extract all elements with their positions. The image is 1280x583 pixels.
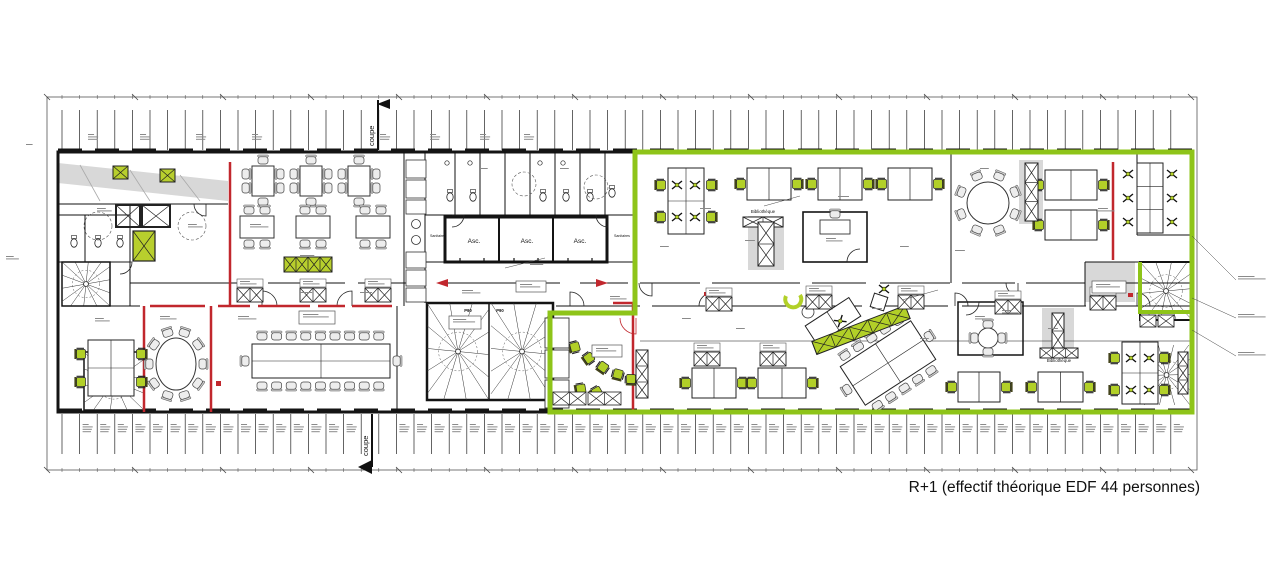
chair-icon — [257, 382, 268, 391]
office-chair-icon — [1025, 381, 1036, 392]
door-tag-1: P90 — [464, 308, 472, 313]
tiny-annotation-text — [596, 350, 616, 351]
wc-icon — [117, 239, 123, 247]
plan-rect — [216, 381, 221, 386]
plan-rect — [864, 180, 873, 189]
tiny-annotation-text — [1238, 314, 1255, 315]
office-chair-icon — [1108, 352, 1119, 363]
tiny-annotation-text — [259, 424, 265, 425]
oval-table — [156, 338, 196, 390]
tiny-annotation-text — [505, 431, 513, 432]
chair-icon — [338, 169, 347, 180]
tiny-annotation-text — [809, 288, 819, 289]
tiny-annotation-text — [480, 139, 489, 140]
tiny-annotation-text — [135, 426, 145, 427]
tiny-annotation-text — [540, 431, 548, 432]
plan-circle — [1129, 388, 1133, 392]
tiny-annotation-text — [487, 424, 493, 425]
chair-icon — [983, 348, 994, 357]
tiny-annotation-text — [347, 429, 356, 430]
plan-rect — [330, 333, 340, 340]
chair-icon — [969, 333, 978, 344]
tiny-annotation-text — [470, 429, 479, 430]
plan-rect — [1099, 221, 1108, 230]
plan-rect — [612, 368, 623, 379]
plan-rect — [199, 359, 206, 369]
tiny-annotation-text — [763, 345, 773, 346]
tiny-annotation-text — [1068, 431, 1076, 432]
tiny-annotation-text — [171, 426, 181, 427]
tiny-annotation-text — [1174, 426, 1184, 427]
tiny-annotation-text — [360, 292, 372, 293]
tiny-annotation-text — [417, 431, 425, 432]
plan-circle — [1126, 220, 1130, 224]
plan-rect — [682, 379, 691, 388]
tiny-annotation-text — [826, 238, 836, 239]
chair-icon — [338, 183, 347, 194]
plan-rect — [707, 213, 716, 222]
tiny-annotation-text — [88, 139, 97, 140]
office-chair-icon — [808, 377, 819, 388]
plan-rect — [315, 382, 325, 389]
cafeteria-table — [356, 216, 390, 238]
tiny-annotation-text — [487, 426, 497, 427]
tiny-annotation-text — [520, 284, 532, 285]
tiny-annotation-text — [435, 426, 445, 427]
plan-rect — [77, 350, 86, 359]
tiny-annotation-text — [736, 328, 745, 329]
plan-rect — [286, 382, 296, 389]
tiny-annotation-text — [998, 429, 1007, 430]
chair-icon — [300, 240, 311, 249]
tiny-annotation-text — [1015, 424, 1021, 425]
tiny-annotation-text — [1051, 429, 1060, 430]
office-chair-icon — [74, 376, 85, 387]
chair-icon — [244, 240, 255, 249]
tiny-annotation-text — [100, 426, 110, 427]
tiny-annotation-text — [470, 431, 478, 432]
tiny-annotation-text — [628, 424, 634, 425]
tiny-annotation-text — [980, 431, 988, 432]
tiny-annotation-text — [303, 281, 313, 282]
round-table — [978, 328, 998, 348]
plan-rect — [300, 207, 310, 214]
tiny-annotation-text — [1068, 429, 1077, 430]
tiny-annotation-text — [575, 426, 585, 427]
office-chair-icon — [1099, 179, 1110, 190]
tiny-annotation-text — [95, 320, 110, 321]
tiny-annotation-text — [399, 424, 405, 425]
tiny-annotation-text — [100, 431, 108, 432]
tiny-annotation-text — [1098, 208, 1108, 209]
tiny-annotation-text — [252, 134, 258, 135]
label-box — [760, 343, 786, 351]
plan-rect — [290, 183, 297, 193]
plan-rect — [300, 240, 310, 247]
tiny-annotation-text — [769, 431, 777, 432]
tiny-annotation-text — [826, 240, 843, 241]
tiny-annotation-text — [663, 426, 673, 427]
tiny-annotation-text — [628, 431, 636, 432]
tiny-annotation-text — [153, 426, 163, 427]
plan-rect — [373, 169, 380, 179]
plan-rect — [793, 180, 802, 189]
section-arrow-bottom — [358, 460, 372, 474]
tiny-annotation-text — [892, 424, 898, 425]
chair-icon — [360, 240, 371, 249]
plan-rect — [137, 350, 146, 359]
tiny-annotation-text — [910, 424, 916, 425]
tiny-annotation-text — [238, 316, 249, 317]
tiny-annotation-text — [523, 431, 531, 432]
plan-rect — [242, 183, 249, 193]
plan-rect — [338, 169, 345, 179]
library-label-2: Bibliothèque — [1047, 358, 1072, 363]
tiny-annotation-text — [1068, 424, 1074, 425]
tiny-annotation-text — [329, 431, 337, 432]
door-tag-2: P90 — [496, 308, 504, 313]
chair-icon — [359, 331, 370, 340]
office-chair-icon — [707, 211, 718, 222]
tiny-annotation-text — [1156, 424, 1162, 425]
tiny-annotation-text — [751, 431, 759, 432]
tiny-annotation-text — [505, 424, 511, 425]
tiny-annotation-text — [734, 424, 740, 425]
tiny-annotation-text — [1121, 429, 1130, 430]
tiny-annotation-text — [399, 429, 408, 430]
tiny-annotation-text — [857, 424, 863, 425]
tiny-annotation-text — [1103, 429, 1112, 430]
tiny-annotation-text — [118, 429, 127, 430]
wc-icon — [71, 239, 77, 247]
tiny-annotation-text — [347, 424, 353, 425]
tiny-annotation-text — [430, 139, 439, 140]
tiny-annotation-text — [769, 426, 779, 427]
tiny-annotation-text — [523, 424, 529, 425]
tiny-annotation-text — [430, 134, 436, 135]
tiny-annotation-text — [505, 426, 515, 427]
plan-rect — [118, 236, 123, 239]
chair-icon — [360, 205, 371, 214]
stair-newel — [1164, 289, 1169, 294]
tiny-annotation-text — [97, 208, 106, 209]
chair-icon — [300, 331, 311, 340]
tiny-annotation-text — [250, 224, 261, 225]
tiny-annotation-text — [140, 134, 146, 135]
tiny-annotation-text — [329, 429, 338, 430]
tiny-annotation-text — [118, 426, 128, 427]
chair-icon — [393, 356, 402, 367]
tiny-annotation-text — [487, 431, 495, 432]
chair-icon — [260, 240, 271, 249]
tiny-annotation-text — [975, 318, 992, 319]
tiny-annotation-text — [963, 426, 973, 427]
tiny-annotation-text — [347, 426, 357, 427]
chair-icon — [199, 359, 208, 370]
chair-icon — [316, 205, 327, 214]
chair-icon — [344, 331, 355, 340]
tiny-annotation-text — [188, 429, 197, 430]
tiny-annotation-text — [540, 429, 549, 430]
plan-rect — [657, 213, 666, 222]
office-chair-icon — [793, 178, 804, 189]
stair-newel — [520, 349, 525, 354]
plan-circle — [1147, 388, 1151, 392]
chair-icon — [271, 382, 282, 391]
plan-rect — [301, 382, 311, 389]
tiny-annotation-text — [188, 424, 194, 425]
tiny-annotation-text — [1015, 429, 1024, 430]
tiny-annotation-text — [311, 431, 319, 432]
tiny-annotation-text — [380, 139, 389, 140]
chair-icon — [242, 169, 251, 180]
tiny-annotation-text — [206, 431, 214, 432]
chair-icon — [306, 155, 317, 164]
tiny-annotation-text — [1002, 312, 1019, 313]
tiny-annotation-text — [560, 168, 569, 169]
tiny-annotation-text — [368, 281, 378, 282]
plan-rect — [1002, 383, 1011, 392]
tiny-annotation-text — [709, 292, 726, 293]
tiny-annotation-text — [135, 431, 143, 432]
tiny-annotation-text — [892, 426, 902, 427]
tiny-annotation-text — [1048, 328, 1058, 329]
tiny-annotation-text — [241, 429, 250, 430]
plan-circle — [412, 236, 421, 245]
chair-icon — [983, 319, 994, 328]
plan-circle — [1126, 196, 1130, 200]
tiny-annotation-text — [1086, 429, 1095, 430]
tiny-annotation-text — [1068, 426, 1078, 427]
plan-rect — [373, 183, 380, 193]
plan-circle — [1170, 172, 1174, 176]
plan-rect — [359, 382, 369, 389]
tiny-annotation-text — [611, 424, 617, 425]
plan-rect — [272, 333, 282, 340]
tiny-annotation-text — [963, 424, 969, 425]
tiny-annotation-text — [628, 426, 638, 427]
tiny-annotation-text — [196, 139, 205, 140]
tiny-annotation-text — [1121, 424, 1127, 425]
tiny-annotation-text — [238, 318, 256, 319]
chair-icon — [290, 183, 299, 194]
plan-rect — [948, 383, 957, 392]
plan-rect — [316, 240, 326, 247]
plan-rect — [277, 169, 284, 179]
label-box — [694, 343, 720, 351]
tiny-annotation-text — [1086, 424, 1092, 425]
tiny-annotation-text — [435, 424, 441, 425]
plan-rect — [242, 169, 249, 179]
floor-plan-page: Asc. Asc. Asc. Bibliothèque Bibliothèque… — [0, 0, 1280, 583]
office-chair-icon — [707, 179, 718, 190]
tiny-annotation-text — [470, 424, 476, 425]
chair-icon — [323, 169, 332, 180]
office-chair-icon — [734, 178, 745, 189]
tiny-annotation-text — [593, 424, 599, 425]
tiny-annotation-text — [1238, 278, 1266, 279]
tiny-annotation-text — [700, 208, 711, 209]
tiny-annotation-text — [558, 429, 567, 430]
plan-rect — [393, 356, 400, 366]
tiny-annotation-text — [435, 431, 443, 432]
label-box — [806, 286, 832, 294]
sink-icon — [561, 161, 565, 165]
plan-rect — [1160, 386, 1169, 395]
tiny-annotation-text — [910, 431, 918, 432]
tiny-annotation-text — [462, 292, 480, 293]
tiny-annotation-text — [1096, 286, 1120, 287]
tiny-annotation-text — [558, 424, 564, 425]
tiny-annotation-text — [294, 429, 303, 430]
tiny-annotation-text — [611, 431, 619, 432]
tiny-annotation-text — [804, 431, 812, 432]
tiny-annotation-text — [399, 431, 407, 432]
office-chair-icon — [1085, 381, 1096, 392]
tiny-annotation-text — [1086, 431, 1094, 432]
tiny-annotation-text — [276, 431, 284, 432]
kitchen-unit — [406, 180, 426, 198]
tiny-annotation-text — [259, 426, 269, 427]
tiny-annotation-text — [97, 210, 112, 211]
label-box — [300, 279, 326, 287]
tiny-annotation-text — [901, 288, 911, 289]
chair-icon — [315, 331, 326, 340]
tiny-annotation-text — [734, 431, 742, 432]
cafeteria-table — [296, 216, 330, 238]
label-box — [706, 288, 732, 296]
chair-icon — [300, 205, 311, 214]
tiny-annotation-text — [716, 424, 722, 425]
tiny-annotation-text — [118, 424, 124, 425]
plan-line — [1192, 330, 1236, 356]
plan-rect — [376, 207, 386, 214]
tiny-annotation-text — [1103, 431, 1111, 432]
tiny-annotation-text — [663, 429, 672, 430]
plan-circle — [693, 183, 697, 187]
elevator-1-label: Asc. — [468, 238, 481, 245]
tiny-annotation-text — [435, 429, 444, 430]
tiny-annotation-text — [681, 429, 690, 430]
plan-rect — [1111, 386, 1120, 395]
tiny-annotation-text — [311, 424, 317, 425]
tiny-annotation-text — [135, 429, 144, 430]
tiny-annotation-text — [804, 429, 813, 430]
elevator-2-label: Asc. — [521, 238, 534, 245]
tiny-annotation-text — [697, 347, 714, 348]
plan-rect — [354, 157, 364, 164]
round-table — [967, 182, 1009, 224]
plan-rect — [301, 333, 311, 340]
tiny-annotation-text — [716, 431, 724, 432]
tiny-annotation-text — [26, 144, 33, 145]
tiny-annotation-text — [945, 431, 953, 432]
tiny-annotation-text — [699, 429, 708, 430]
chair-icon — [373, 331, 384, 340]
tiny-annotation-text — [140, 139, 149, 140]
area-label-box — [299, 311, 335, 324]
tiny-annotation-text — [575, 431, 583, 432]
tiny-annotation-text — [1033, 424, 1039, 425]
tiny-annotation-text — [751, 429, 760, 430]
office-chair-icon — [875, 178, 886, 189]
tiny-annotation-text — [804, 426, 814, 427]
tiny-annotation-text — [223, 424, 229, 425]
tiny-annotation-text — [611, 429, 620, 430]
tiny-annotation-text — [1086, 426, 1096, 427]
wc-icon — [470, 193, 476, 201]
tiny-annotation-text — [963, 429, 972, 430]
tiny-annotation-text — [875, 429, 884, 430]
tiny-annotation-text — [276, 426, 286, 427]
plan-circle — [1147, 356, 1151, 360]
plan-rect — [569, 341, 580, 352]
tiny-annotation-text — [697, 345, 707, 346]
sink-icon — [468, 161, 472, 165]
wc-icon — [587, 193, 593, 201]
tiny-annotation-text — [399, 426, 409, 427]
tiny-annotation-text — [1033, 431, 1041, 432]
tiny-annotation-text — [188, 226, 203, 227]
plan-circle — [1126, 172, 1130, 176]
library-label-1: Bibliothèque — [751, 209, 776, 214]
tiny-annotation-text — [83, 429, 92, 430]
section-marker-top-label: coupe — [367, 126, 376, 146]
tiny-annotation-text — [294, 424, 300, 425]
tiny-annotation-text — [530, 264, 543, 265]
plan-rect — [707, 181, 716, 190]
tiny-annotation-text — [927, 429, 936, 430]
tiny-annotation-text — [1238, 276, 1255, 277]
tiny-annotation-text — [1096, 284, 1110, 285]
office-chair-icon — [137, 376, 148, 387]
tiny-annotation-text — [160, 316, 170, 317]
section-marker-bottom-label: coupe — [361, 436, 370, 456]
tiny-annotation-text — [417, 424, 423, 425]
cafeteria-table — [300, 166, 322, 196]
tiny-annotation-text — [980, 429, 989, 430]
tiny-annotation-text — [294, 426, 304, 427]
tiny-annotation-text — [1139, 426, 1149, 427]
tiny-annotation-text — [875, 431, 883, 432]
tiny-annotation-text — [311, 426, 321, 427]
tiny-annotation-text — [558, 426, 568, 427]
tiny-annotation-text — [1139, 429, 1148, 430]
plan-rect — [564, 190, 569, 193]
tiny-annotation-text — [259, 429, 268, 430]
wc-icon — [609, 189, 615, 197]
tiny-annotation-text — [955, 250, 965, 251]
plan-circle — [412, 220, 421, 229]
plan-circle — [1170, 220, 1174, 224]
plan-rect — [541, 190, 546, 193]
plan-rect — [448, 190, 453, 193]
tiny-annotation-text — [1051, 424, 1057, 425]
tiny-annotation-text — [470, 426, 480, 427]
office-chair-icon — [1099, 219, 1110, 230]
tiny-annotation-text — [751, 424, 757, 425]
plan-rect — [471, 190, 476, 193]
chair-icon — [344, 382, 355, 391]
tiny-annotation-text — [769, 429, 778, 430]
tiny-annotation-text — [1139, 424, 1145, 425]
cafeteria-table — [252, 166, 274, 196]
tiny-annotation-text — [380, 134, 386, 135]
plan-rect — [244, 207, 254, 214]
tiny-annotation-text — [241, 424, 247, 425]
tiny-annotation-text — [206, 426, 216, 427]
plan-rect — [808, 379, 817, 388]
